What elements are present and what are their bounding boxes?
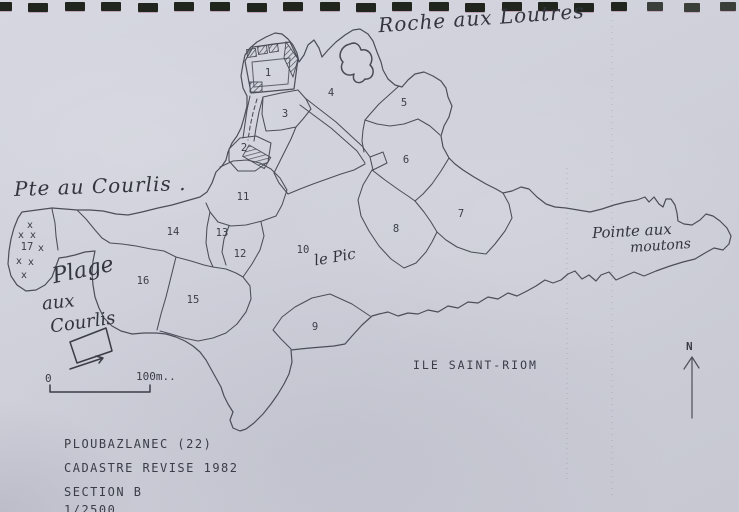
parcel-label-15: 15 xyxy=(187,294,200,306)
boundary-line xyxy=(157,257,176,330)
boundary-line xyxy=(206,212,213,267)
x-mark: x xyxy=(18,230,24,241)
parcel-label-11: 11 xyxy=(237,191,250,203)
annotation-aux: aux xyxy=(41,290,76,314)
north-arrow xyxy=(684,357,699,418)
boundary-line xyxy=(365,119,440,135)
boundary-line xyxy=(437,193,512,254)
parcel-label-14: 14 xyxy=(167,226,180,238)
parcel-label-10: 10 xyxy=(297,244,310,256)
cove-shoreline xyxy=(274,127,365,194)
parcel-label-4: 4 xyxy=(328,87,334,99)
parcel-label-16: 16 xyxy=(137,275,150,287)
parcel-label-9: 9 xyxy=(312,321,318,333)
boundary-line xyxy=(365,86,399,120)
boundary-line xyxy=(52,209,58,250)
parcel-label-1: 1 xyxy=(265,67,271,79)
x-mark: x xyxy=(16,256,22,267)
parcel-label-6: 6 xyxy=(403,154,409,166)
boundary-line xyxy=(160,277,251,341)
parcel-label-13: 13 xyxy=(216,227,229,239)
cartouche-commune: PLOUBAZLANEC (22) xyxy=(64,437,212,451)
scanned-cadastre-page: 1234567891011121314151617 xxxxxxx Roche … xyxy=(0,0,739,512)
x-mark: x xyxy=(38,243,44,254)
parcel-label-17: 17 xyxy=(21,241,34,253)
parcel-labels: 1234567891011121314151617 xyxy=(21,67,464,333)
scale-zero-label: 0 xyxy=(45,372,52,385)
cartouche-section: SECTION B xyxy=(64,485,143,499)
rock-sketch xyxy=(340,43,373,83)
path-edge xyxy=(254,97,263,141)
x-mark: x xyxy=(21,270,27,281)
parcel-label-3: 3 xyxy=(282,108,288,120)
boundary-line xyxy=(273,294,370,349)
sketch-rectangle xyxy=(70,328,112,369)
boundary-line xyxy=(372,170,415,201)
path-dashed-centerline xyxy=(248,99,257,140)
boundary-line xyxy=(415,158,449,201)
parcel-label-5: 5 xyxy=(401,97,407,109)
x-mark: x xyxy=(30,230,36,241)
boundary-line xyxy=(213,267,243,277)
scale-bar xyxy=(50,385,150,392)
cartouche-scale: 1/2500 xyxy=(64,503,116,512)
north-label: N xyxy=(686,340,693,353)
parcel-label-2: 2 xyxy=(241,142,247,154)
scale-distance-label: 100m.. xyxy=(136,370,176,383)
causeway xyxy=(300,98,387,170)
island-name-label: ILE SAINT-RIOM xyxy=(413,358,538,372)
x-mark: x xyxy=(28,257,34,268)
fold-lines xyxy=(567,8,612,500)
parcel-label-7: 7 xyxy=(458,208,464,220)
fort-buildings xyxy=(246,42,298,92)
boundary-line xyxy=(358,170,437,268)
parcel-label-12: 12 xyxy=(234,248,247,260)
parcel-label-8: 8 xyxy=(393,223,399,235)
cartouche-cadastre: CADASTRE REVISE 1982 xyxy=(64,461,239,475)
boundary-line xyxy=(415,201,437,232)
